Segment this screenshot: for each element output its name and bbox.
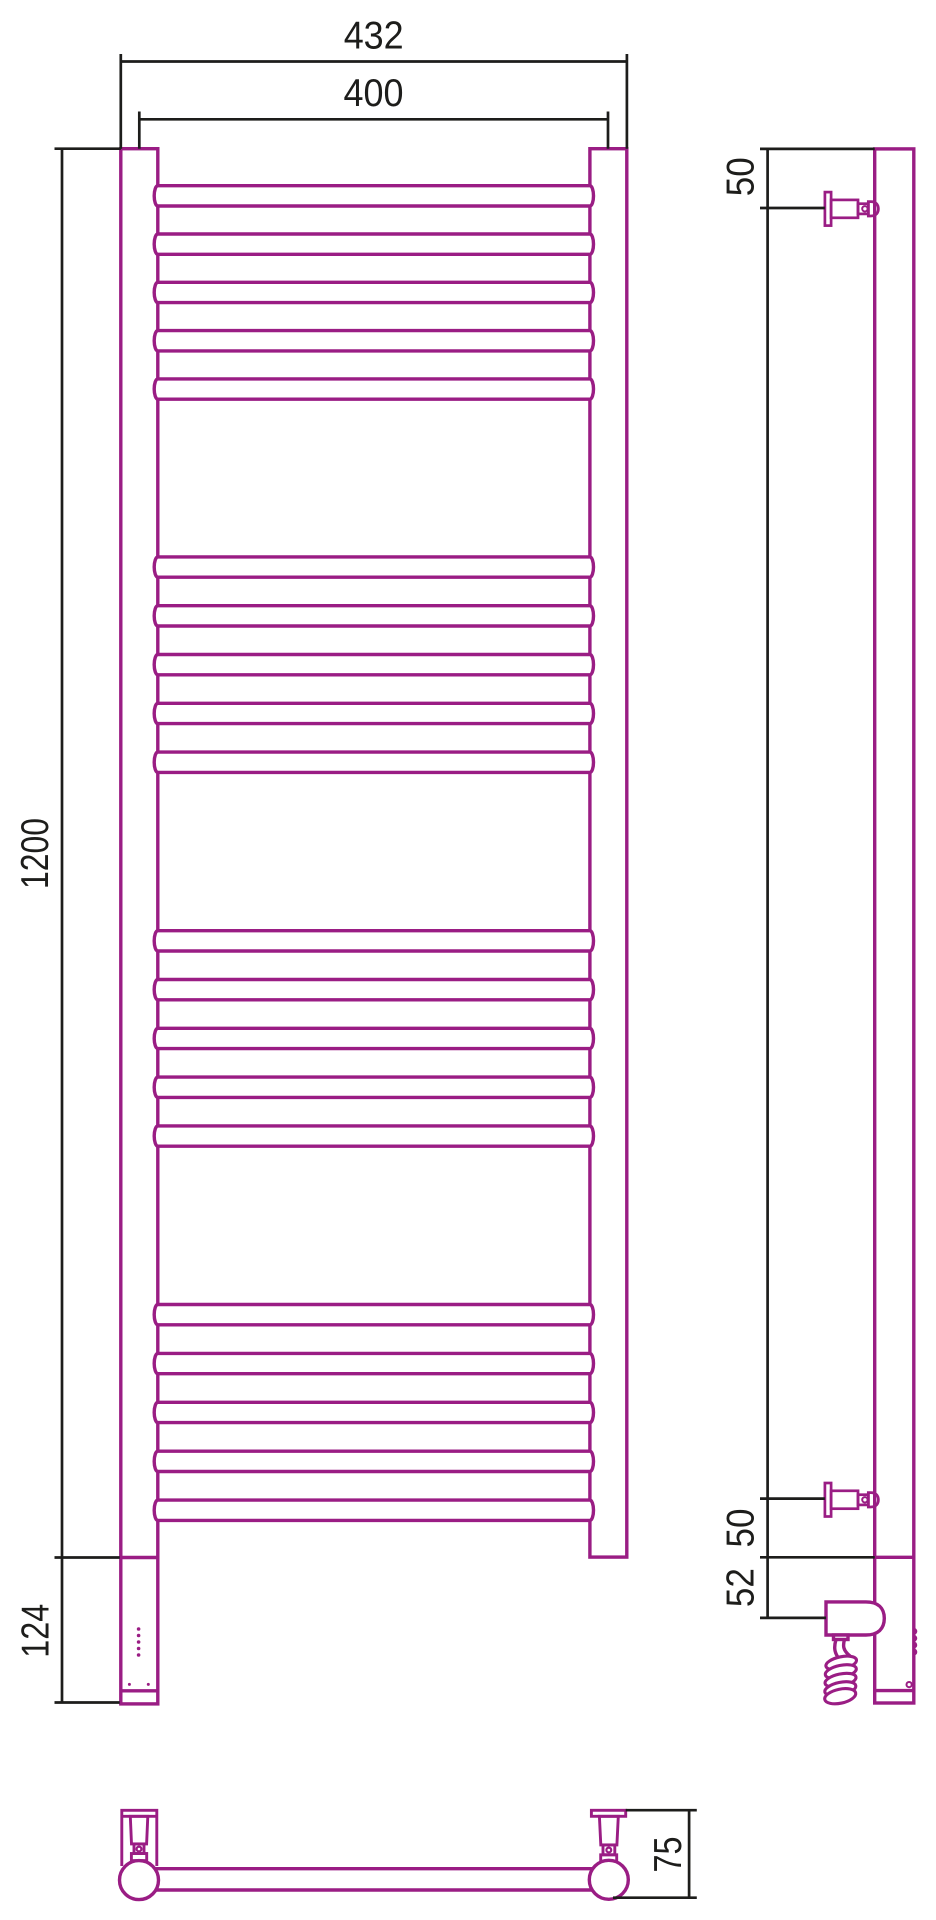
svg-text:432: 432 <box>344 14 404 57</box>
svg-text:124: 124 <box>14 1604 57 1658</box>
svg-text:50: 50 <box>720 157 763 196</box>
svg-text:1200: 1200 <box>14 818 57 889</box>
svg-text:75: 75 <box>647 1837 690 1873</box>
svg-text:52: 52 <box>720 1568 763 1607</box>
svg-text:50: 50 <box>720 1509 763 1548</box>
svg-text:400: 400 <box>344 72 404 115</box>
